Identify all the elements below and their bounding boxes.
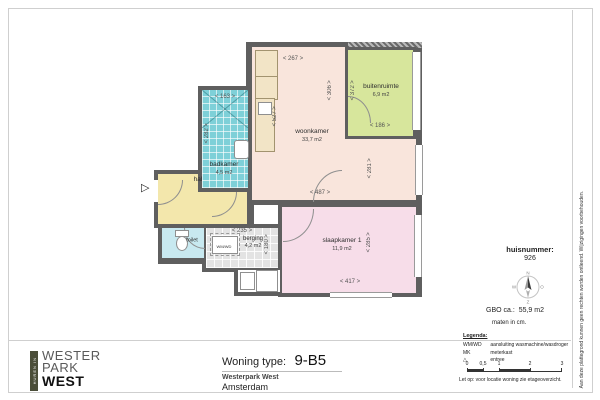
title-line: Woning type: 9-B5 bbox=[222, 352, 326, 370]
dim-woonkamer-bottom: 487 bbox=[290, 190, 350, 196]
room-name: hal bbox=[194, 176, 203, 183]
legend-title: Legenda: bbox=[463, 333, 487, 339]
compass-n: N bbox=[526, 271, 529, 276]
city-name: Amsterdam bbox=[222, 382, 268, 392]
washer-label: WM/WD bbox=[212, 244, 236, 249]
dim-badkamer-top: 163 bbox=[203, 94, 247, 100]
scale-segment bbox=[499, 369, 530, 372]
scale-tick bbox=[530, 368, 531, 372]
location-note: Let op: voor locatie woning zie etageove… bbox=[459, 377, 562, 383]
huisnummer-label: huisnummer: bbox=[495, 245, 565, 254]
dim-badkamer-left: 282 bbox=[204, 123, 210, 143]
washbasin-icon bbox=[234, 140, 249, 159]
woning-type-code: 9-B5 bbox=[294, 352, 326, 369]
window bbox=[412, 52, 421, 130]
scale-tick-label: 3 bbox=[561, 361, 564, 367]
scale-tick-label: 0,5 bbox=[480, 361, 487, 367]
room-area: 11,9 m2 bbox=[332, 246, 351, 252]
window bbox=[330, 292, 392, 298]
scale-tick-label: 0 bbox=[466, 361, 469, 367]
scale-tick-label: 2 bbox=[529, 361, 532, 367]
dim-slaapkamer-right: 285 bbox=[366, 232, 372, 252]
window bbox=[414, 215, 422, 277]
legend-symbol: MK bbox=[463, 350, 489, 356]
dim-buitenruimte-left: 372 bbox=[350, 80, 356, 100]
units-note: maten in cm. bbox=[492, 320, 526, 326]
room-area: 6,9 m2 bbox=[373, 92, 390, 98]
disclaimer-text: Aan deze plattegrond kunnen geen rechten… bbox=[579, 191, 585, 388]
room-name: toilet bbox=[186, 238, 198, 244]
room-area: 4,5 m2 bbox=[216, 170, 233, 176]
logo: HUREN IN WESTER PARK WEST bbox=[30, 350, 120, 392]
floorplan-sheet: WM/WD ▷ woonkamer 33,7 m2 buitenruimte 6… bbox=[0, 0, 600, 400]
meterkast-box bbox=[240, 272, 255, 290]
dim-buitenruimte-bottom: 186 bbox=[355, 123, 405, 129]
legend-label: aansluiting wasmachine/wasdroger bbox=[490, 342, 568, 348]
room-label-toilet: toilet bbox=[186, 238, 198, 245]
gbo-line: GBO ca.: 55,9 m2 bbox=[486, 307, 544, 314]
gbo-label: GBO ca.: bbox=[486, 307, 515, 314]
project-name: Westerpark West bbox=[222, 374, 279, 381]
disclaimer-strip: Aan deze plattegrond kunnen geen rechten… bbox=[572, 10, 591, 388]
title-divider bbox=[222, 371, 342, 372]
room-name: woonkamer bbox=[295, 128, 329, 135]
scale-tick-label: 1 bbox=[498, 361, 501, 367]
compass-icon: N O Z W bbox=[512, 270, 544, 304]
room-name: slaapkamer 1 bbox=[322, 237, 361, 244]
gbo-value: 55,9 m2 bbox=[519, 307, 544, 314]
legend-row-wmwd: WM/WD aansluiting wasmachine/wasdroger bbox=[463, 342, 568, 348]
scale-tick bbox=[483, 368, 484, 372]
room-label-woonkamer: woonkamer 33,7 m2 bbox=[295, 128, 329, 144]
kitchen-counter bbox=[255, 76, 278, 100]
window bbox=[415, 145, 423, 195]
logo-strip: HUREN IN bbox=[30, 351, 38, 391]
dim-berging-right: 180 bbox=[264, 234, 270, 254]
room-label-hal: hal bbox=[194, 176, 203, 184]
legend-row-mk: MK meterkast bbox=[463, 350, 512, 356]
room-area: 4,2 m2 bbox=[245, 243, 262, 249]
dim-woonkamer-right-lower: 281 bbox=[367, 158, 373, 178]
legend-label: meterkast bbox=[490, 350, 512, 356]
huisnummer-value: 926 bbox=[495, 255, 565, 262]
compass-s: Z bbox=[527, 300, 530, 305]
compass-e: O bbox=[540, 285, 544, 290]
woning-type-label: Woning type: bbox=[222, 356, 286, 368]
dim-woonkamer-right-upper: 306 bbox=[327, 80, 333, 100]
dim-woonkamer-top: 267 bbox=[265, 56, 321, 62]
room-label-buitenruimte: buitenruimte 6,9 m2 bbox=[363, 83, 399, 99]
kitchen-sink bbox=[258, 102, 272, 115]
dim-slaapkamer-bottom: 417 bbox=[320, 279, 380, 285]
dim-berging-top: 235 bbox=[214, 228, 270, 234]
compass-w: W bbox=[512, 285, 517, 290]
scale-segment bbox=[467, 369, 483, 372]
room-name: buitenruimte bbox=[363, 83, 399, 90]
room-label-berging: berging 4,2 m2 bbox=[243, 236, 263, 250]
titleblock-divider bbox=[9, 340, 571, 341]
legend-symbol: WM/WD bbox=[463, 342, 489, 348]
room-area: 33,7 m2 bbox=[302, 137, 322, 143]
scale-tick bbox=[561, 368, 562, 372]
room-label-badkamer: badkamer 4,5 m2 bbox=[210, 161, 239, 177]
logo-vertical-text: HUREN IN bbox=[32, 357, 37, 384]
shaft-box bbox=[256, 270, 278, 292]
logo-line-west: WEST bbox=[42, 375, 101, 388]
room-label-slaapkamer: slaapkamer 1 11,9 m2 bbox=[322, 237, 361, 253]
room-name: berging bbox=[243, 236, 263, 242]
room-name: badkamer bbox=[210, 161, 239, 168]
entree-triangle: ▷ bbox=[141, 183, 149, 194]
kitchen-counter bbox=[255, 50, 278, 78]
dim-woonkamer-left: 527 bbox=[272, 106, 278, 126]
